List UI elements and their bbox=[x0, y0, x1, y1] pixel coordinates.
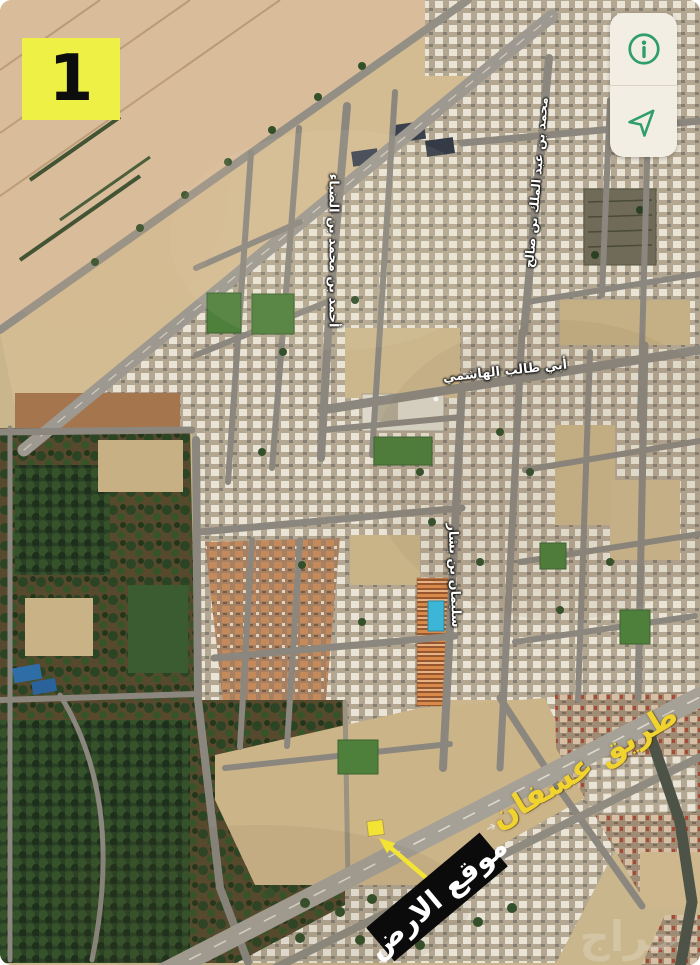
map-control-panel bbox=[610, 13, 677, 157]
locate-button[interactable] bbox=[610, 86, 677, 158]
site-marker bbox=[367, 820, 384, 836]
map-canvas[interactable] bbox=[0, 0, 700, 965]
navigation-arrow-icon bbox=[625, 102, 663, 140]
info-icon bbox=[625, 30, 663, 68]
map-screenshot: أحمد بن محمد بن الضياء محمد بن عبد الملك… bbox=[0, 0, 700, 965]
info-button[interactable] bbox=[610, 13, 677, 86]
photo-index-badge: 1 bbox=[22, 38, 120, 120]
